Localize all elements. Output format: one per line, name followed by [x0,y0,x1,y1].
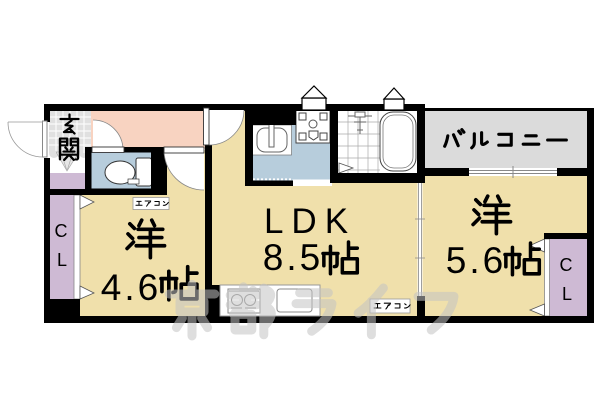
svg-text:4.6: 4.6 [101,267,161,308]
svg-text:C: C [560,255,573,275]
svg-text:8.5: 8.5 [263,237,323,278]
svg-text:LDK: LDK [264,202,356,241]
svg-text:L: L [562,284,572,304]
svg-text:5.6: 5.6 [446,240,506,281]
svg-text:C: C [55,221,68,241]
svg-text:L: L [57,250,67,270]
